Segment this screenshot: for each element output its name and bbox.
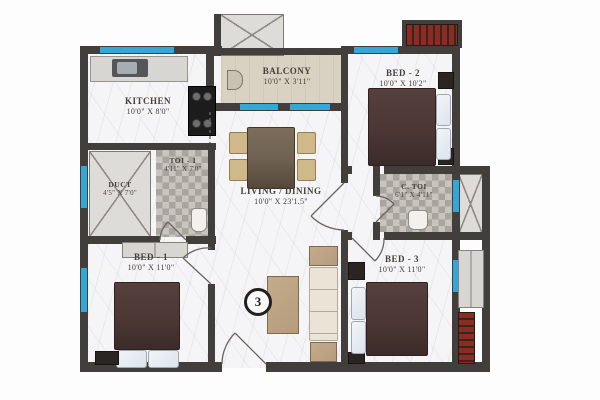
bed1-pillow-icon	[116, 350, 147, 368]
wall-bed3-top-b	[384, 232, 490, 240]
bed2-bed-icon	[368, 88, 436, 166]
bed1-wardrobe-icon	[122, 242, 188, 258]
wall-bed2-bottom-a	[341, 166, 352, 174]
wall-bed3-top-a	[341, 232, 352, 240]
wall-shaft-side	[214, 14, 221, 56]
bed1-pillow-icon	[148, 350, 179, 368]
kitchen-window	[100, 47, 174, 53]
bed1-bed-icon	[114, 282, 180, 350]
wall-bed1-right-a	[208, 236, 215, 250]
dining-chair-icon	[229, 159, 248, 181]
bed3-pillow-icon	[351, 321, 366, 354]
burner-icon	[192, 119, 201, 128]
sink-basin-icon	[117, 62, 137, 74]
wall-bottom-right	[266, 362, 490, 372]
dining-chair-icon	[297, 159, 316, 181]
bed3-nightstand-icon	[348, 262, 365, 280]
unit-number-marker: 3	[244, 288, 272, 316]
bed3-wardrobe-icon	[458, 250, 484, 308]
balcony-door-window-left	[240, 104, 278, 110]
wall-living-right-lower	[341, 230, 348, 372]
ctoi-wc-icon	[408, 210, 428, 230]
stove-icon	[188, 86, 216, 136]
wall-left-upper	[80, 46, 88, 158]
wall-bed2-bottom-b	[384, 166, 490, 174]
burner-icon	[203, 92, 212, 101]
wall-ctoi-left-b	[373, 222, 380, 240]
wall-balcony-top	[214, 48, 348, 55]
bed3-pillow-icon	[351, 287, 366, 320]
duct-window	[81, 166, 87, 208]
bed3-bed-icon	[366, 282, 428, 356]
dining-table-icon	[247, 127, 295, 189]
bed2-pillow-icon	[436, 94, 451, 126]
duct-right	[458, 174, 483, 234]
dining-chair-icon	[229, 132, 248, 154]
bed1-window	[81, 268, 87, 312]
sofa-icon	[309, 267, 338, 341]
wall-ctoi-left-a	[373, 166, 380, 196]
tv-unit-icon	[267, 276, 299, 334]
burner-icon	[192, 92, 201, 101]
corner-table-icon	[310, 342, 337, 362]
bed2-window	[354, 47, 398, 53]
balcony-sconce-icon	[227, 70, 243, 90]
wall-kitchen-bottom	[80, 143, 216, 150]
dining-chair-icon	[297, 132, 316, 154]
wall-toi1-right-upper	[208, 143, 215, 243]
bed2-wardrobe-icon	[406, 24, 458, 46]
duct-floor	[89, 151, 151, 237]
side-table-icon	[309, 246, 338, 266]
shoe-rack-icon	[458, 312, 475, 364]
wall-bed1-right-b	[208, 284, 215, 372]
bed2-pillow-icon	[436, 128, 451, 160]
balcony-door-window-right	[290, 104, 330, 110]
floor-plan: KITCHEN 10'0" X 8'0" BALCONY 10'0" X 3'1…	[0, 0, 600, 400]
toi1-wc-icon	[191, 208, 207, 232]
ctoi-window	[453, 180, 459, 212]
wall-living-right-upper	[341, 48, 348, 183]
bed2-nightstand-icon	[438, 72, 454, 89]
burner-icon	[203, 119, 212, 128]
bed1-side-table-icon	[95, 351, 119, 365]
